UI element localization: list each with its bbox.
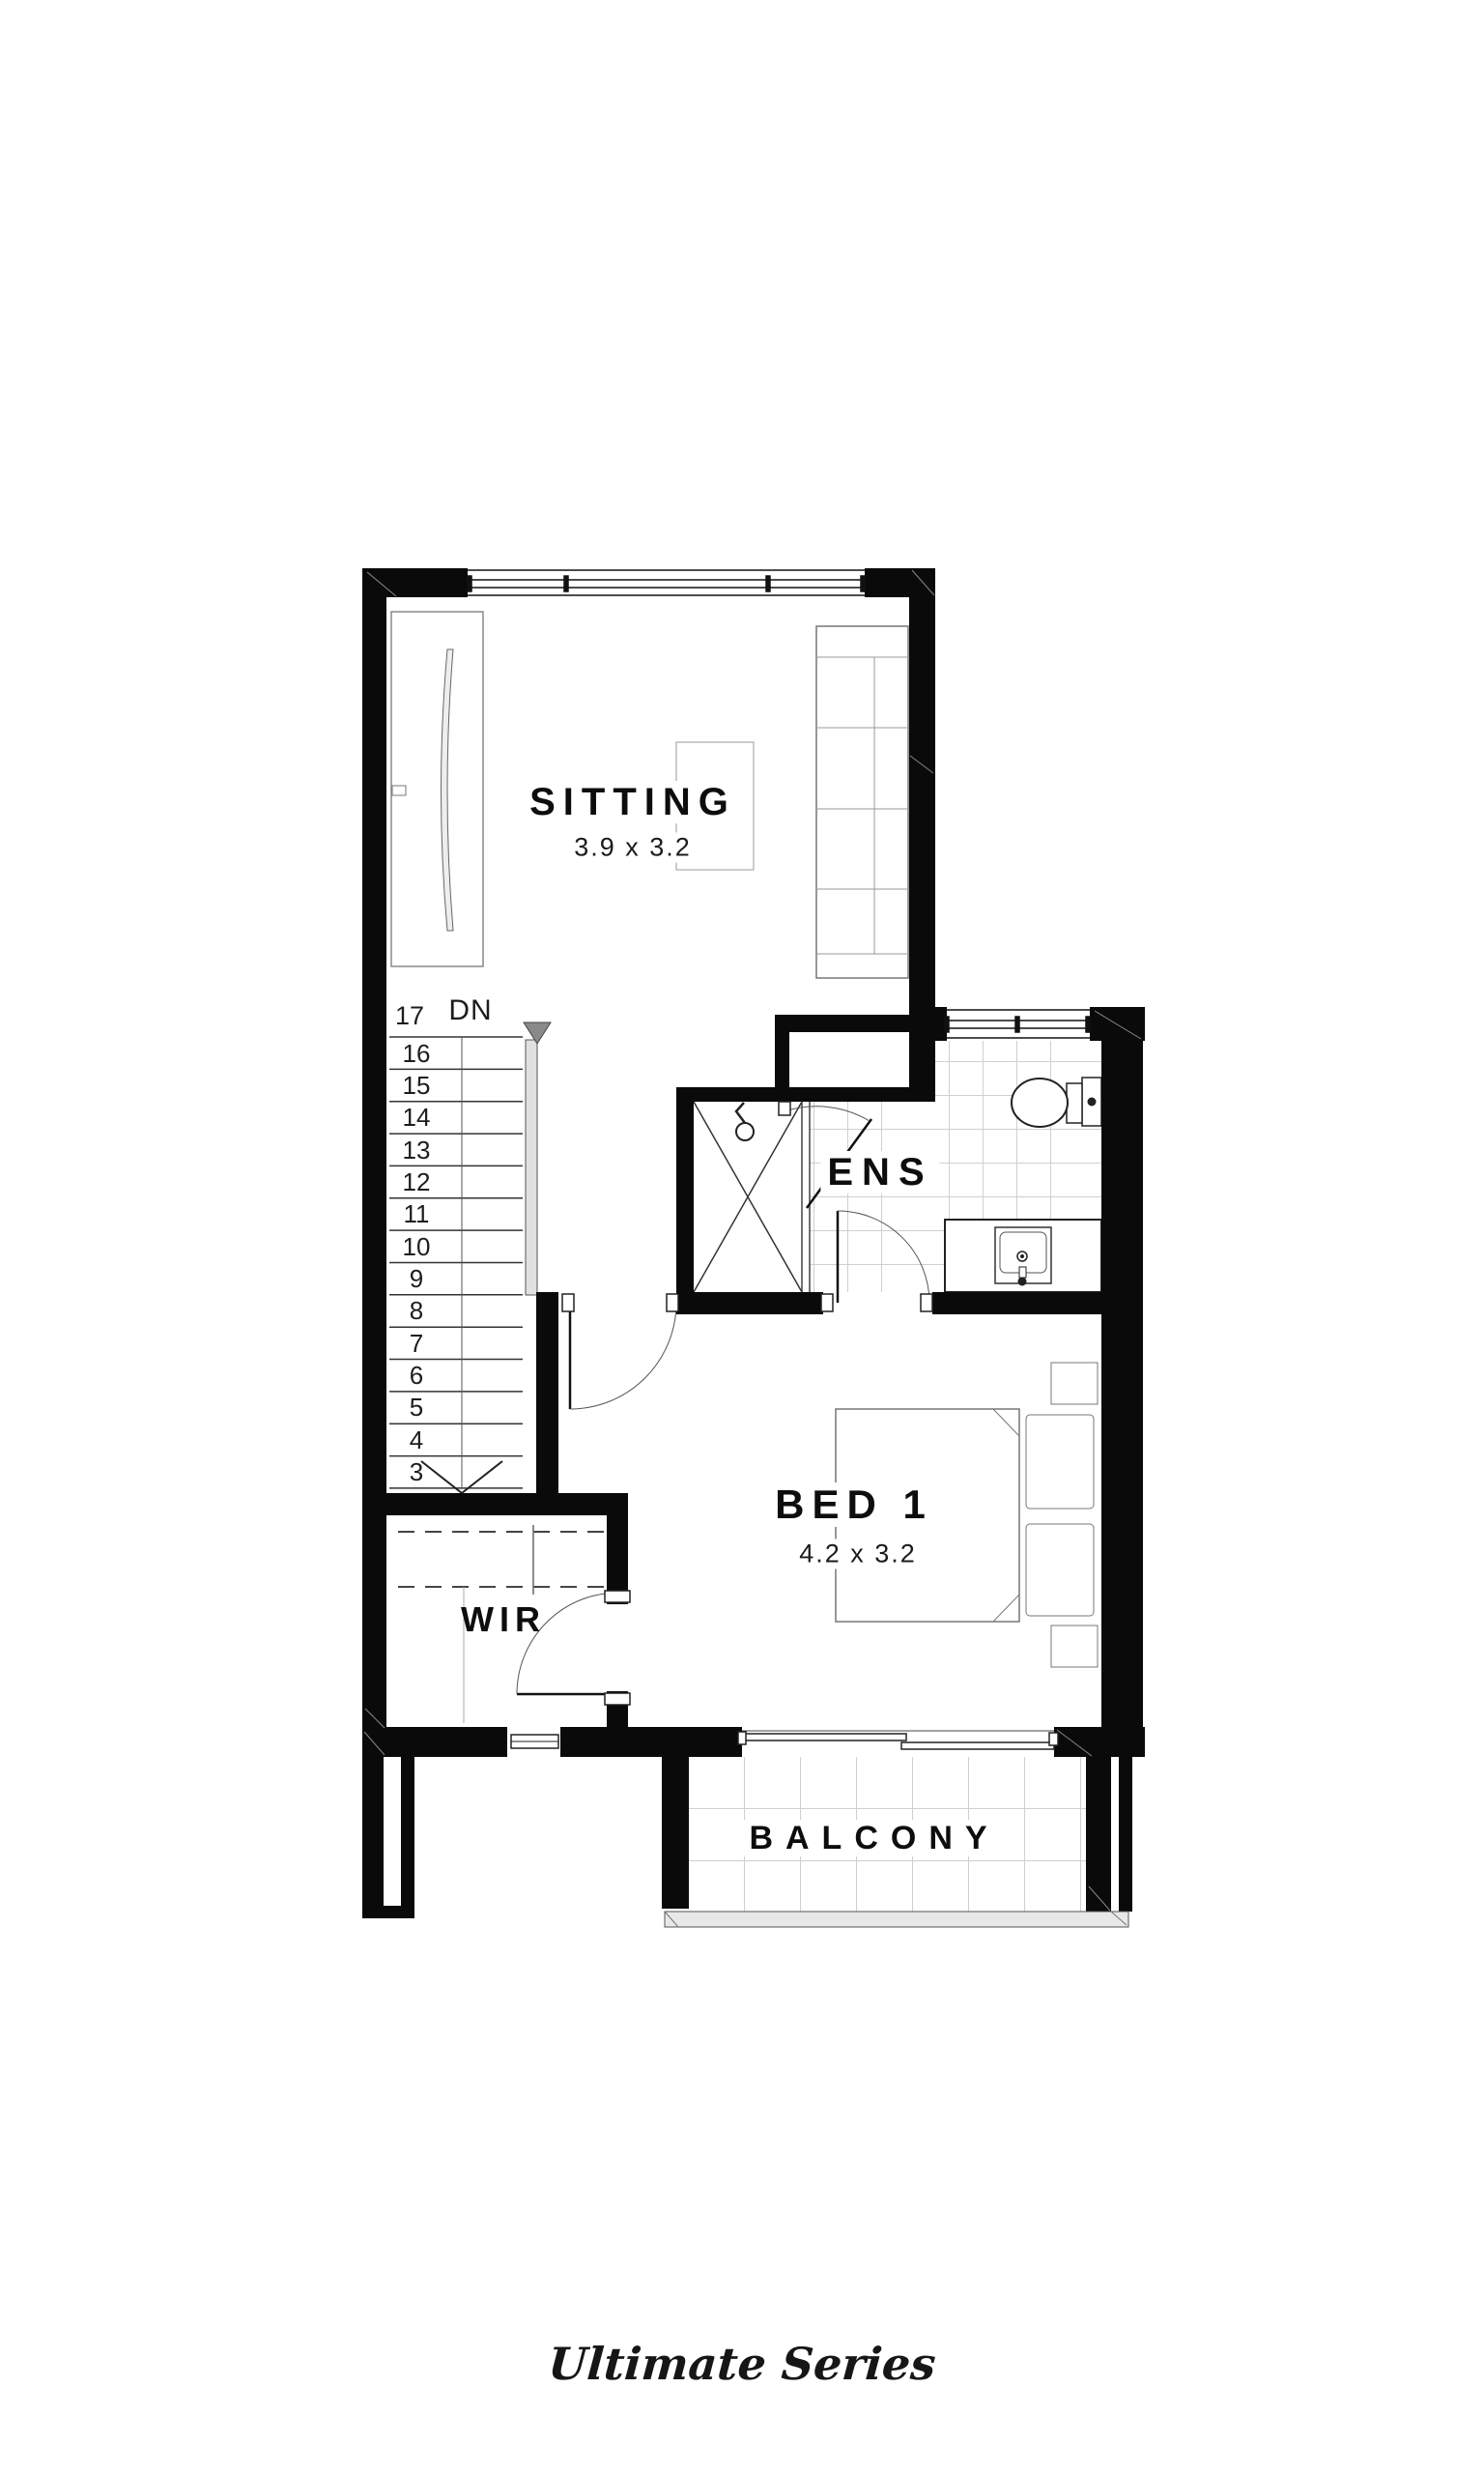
brand-signature: Ultimate Series bbox=[547, 2338, 937, 2390]
vanity bbox=[945, 1220, 1101, 1292]
sliding-door bbox=[738, 1731, 1058, 1749]
room-dims-sitting: 3.9 x 3.2 bbox=[567, 833, 699, 863]
room-label-balcony: BALCONY bbox=[742, 1820, 1006, 1856]
stair-step-number: 4 bbox=[386, 1426, 446, 1453]
stair-step-number: 16 bbox=[386, 1040, 446, 1067]
window-ens bbox=[945, 1010, 1090, 1038]
sofa bbox=[816, 626, 908, 978]
shower bbox=[694, 1102, 810, 1292]
ens-door bbox=[838, 1211, 929, 1303]
window-wir bbox=[511, 1735, 558, 1748]
toilet bbox=[1012, 1078, 1101, 1127]
stair-step-number: 10 bbox=[386, 1233, 446, 1260]
stair-step-number: 6 bbox=[386, 1362, 446, 1389]
room-label-ens: ENS bbox=[820, 1151, 939, 1194]
room-dims-bed1: 4.2 x 3.2 bbox=[792, 1539, 924, 1569]
stair-step-number: 8 bbox=[386, 1297, 446, 1324]
floor-plan-page: SITTING 3.9 x 3.2 ENS BED 1 4.2 x 3.2 WI… bbox=[0, 0, 1484, 2474]
stair-step-number: 5 bbox=[386, 1394, 446, 1421]
shower-door-swing bbox=[785, 1107, 870, 1121]
room-label-wir: WIR bbox=[454, 1600, 553, 1639]
tv-unit bbox=[391, 612, 483, 966]
room-label-bed1: BED 1 bbox=[768, 1482, 940, 1527]
stairs-direction-label: DN bbox=[437, 997, 504, 1024]
stair-step-number: 3 bbox=[386, 1458, 446, 1485]
stair-step-number: 15 bbox=[386, 1072, 446, 1099]
stair-step-number: 14 bbox=[386, 1104, 446, 1131]
balcony-slab-edge bbox=[665, 1912, 1128, 1927]
bed1-entry-door bbox=[570, 1303, 676, 1409]
floor-plan-linework bbox=[0, 0, 1484, 2474]
stair-step-number: 12 bbox=[386, 1168, 446, 1195]
window-top bbox=[468, 570, 865, 595]
stair-step-number: 13 bbox=[386, 1136, 446, 1164]
stair-step-number: 11 bbox=[386, 1200, 446, 1227]
stair-step-number: 7 bbox=[386, 1330, 446, 1357]
stair-handrail bbox=[524, 1022, 551, 1295]
stair-step-number: 9 bbox=[386, 1265, 446, 1292]
stair-top-step-number: 17 bbox=[383, 1002, 437, 1029]
room-label-sitting: SITTING bbox=[523, 781, 743, 823]
